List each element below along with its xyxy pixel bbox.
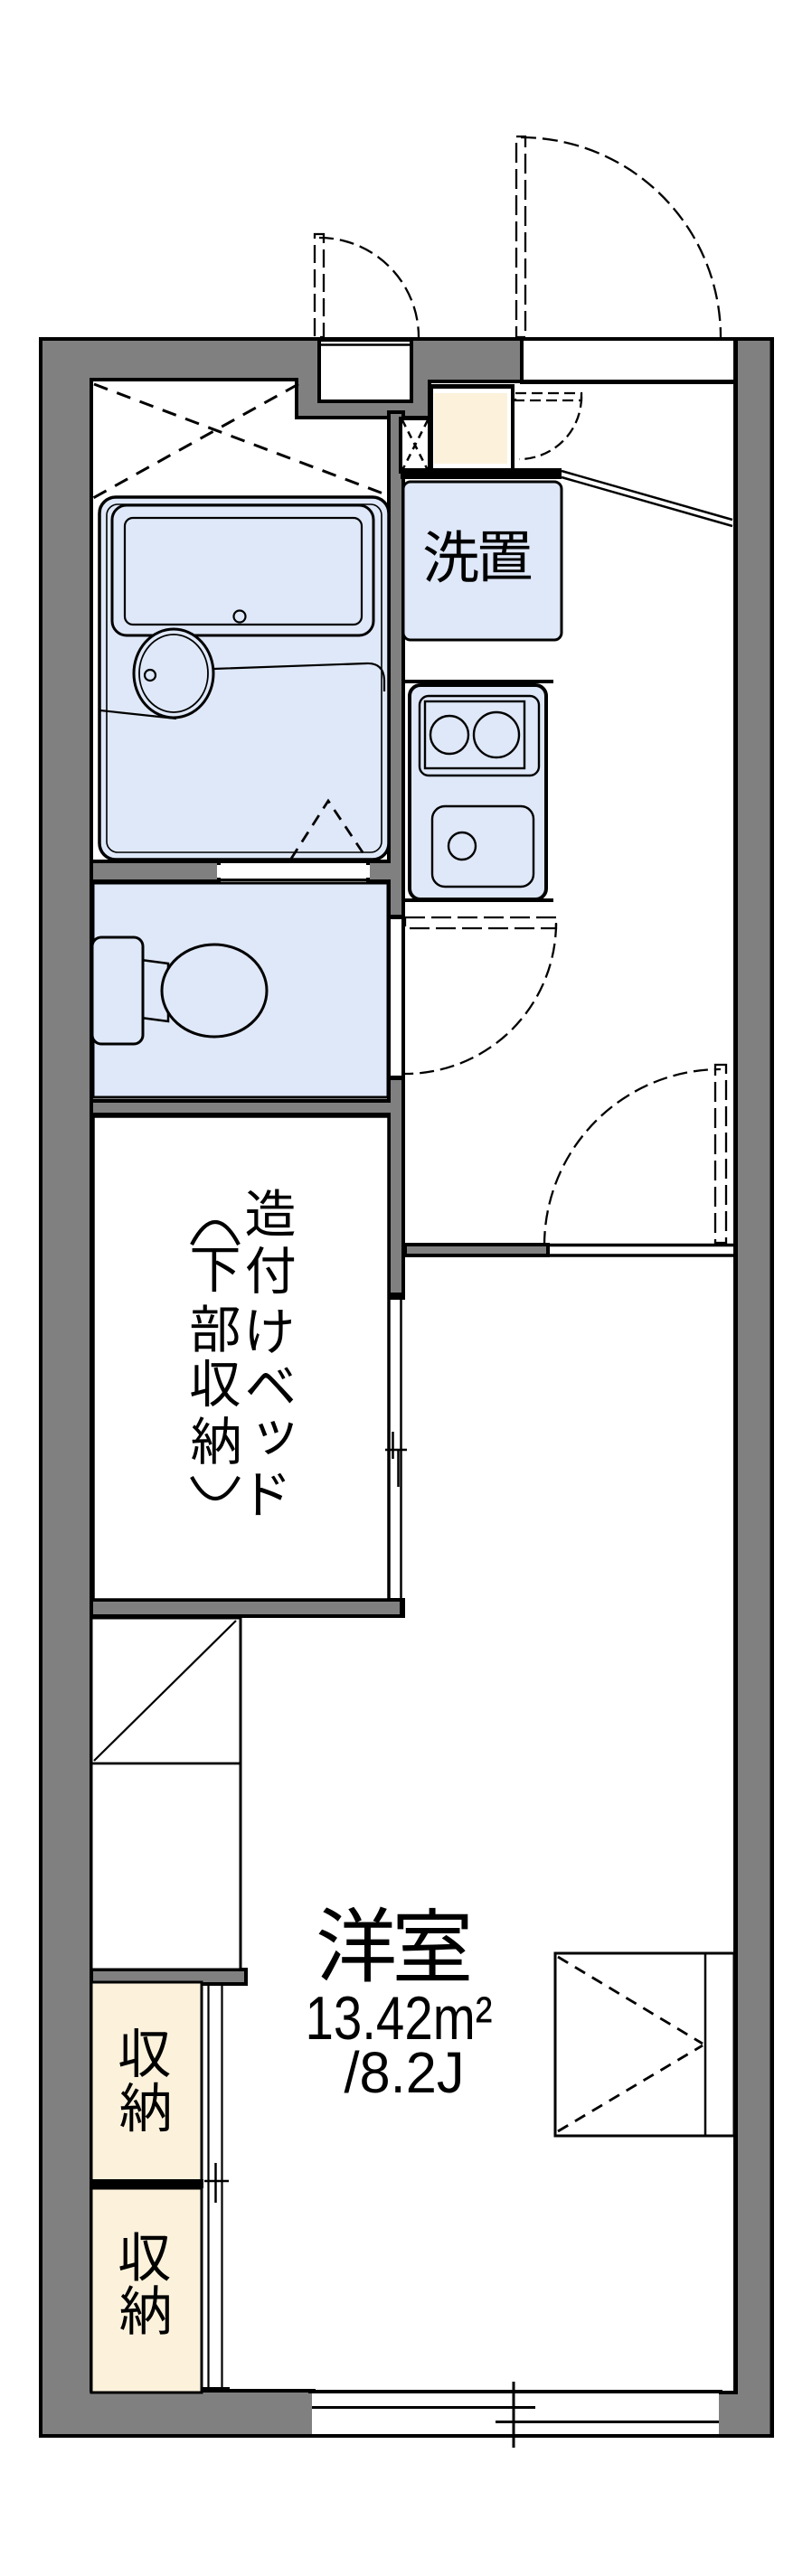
- svg-text:/8.2J: /8.2J: [345, 2040, 465, 2105]
